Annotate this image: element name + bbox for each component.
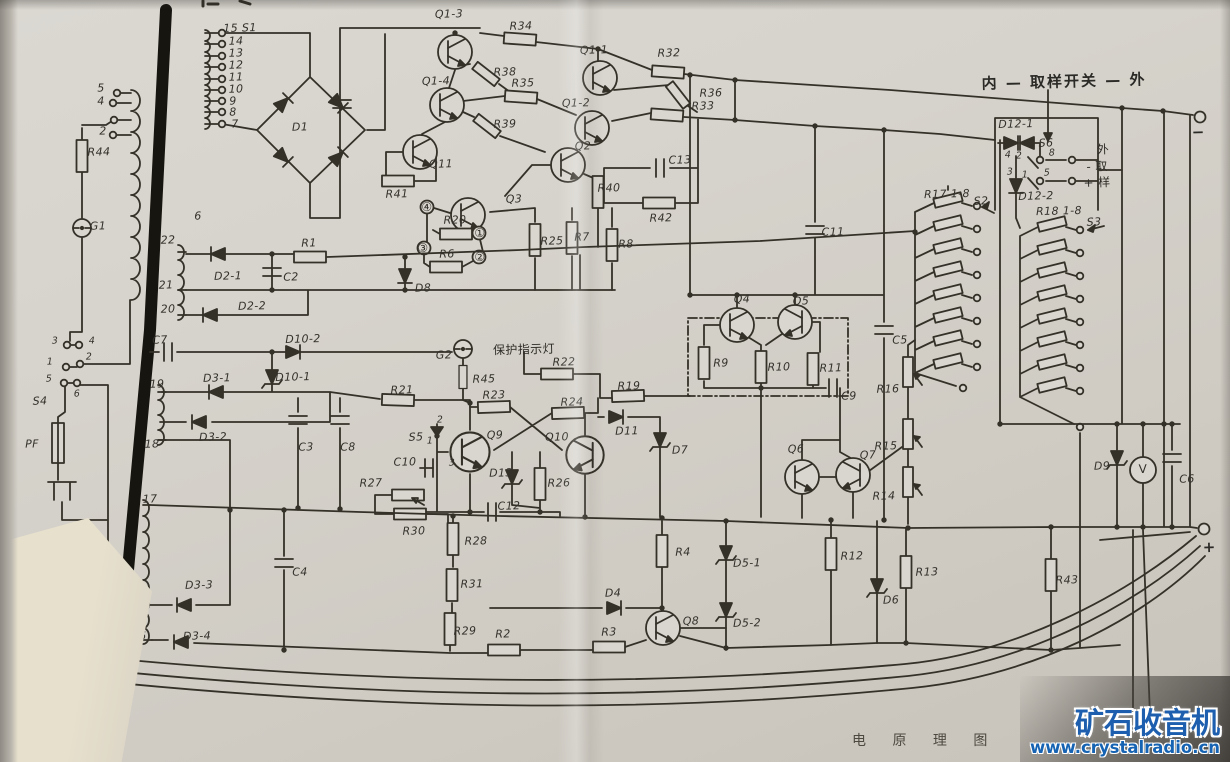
label-t7: 7	[231, 117, 239, 130]
label-r30: R30	[402, 524, 425, 538]
label-d10-2: D10-2	[285, 332, 321, 346]
label-term1: ①	[474, 226, 486, 240]
label-r45: R45	[472, 372, 495, 386]
label-r17: R17 1-8	[924, 187, 970, 201]
label-d7: D7	[672, 443, 689, 456]
label-s4: S4	[32, 394, 47, 407]
label-s3: S3	[1086, 215, 1101, 228]
label-s6c1: 1	[1022, 169, 1029, 180]
label-r12: R12	[840, 549, 863, 563]
label-t21: 21	[158, 278, 173, 291]
label-r35: R35	[511, 76, 534, 90]
label-c5: C5	[892, 333, 908, 346]
label-t15: 15 S1	[223, 21, 257, 35]
watermark: 矿石收音机 www.crystalradio.cn	[1030, 708, 1220, 756]
label-d3-3: D3-3	[185, 578, 213, 592]
label-t17: 17	[142, 492, 157, 505]
label-s2: S2	[973, 194, 988, 207]
label-t20: 20	[160, 302, 175, 315]
label-s6c5: 5	[1044, 167, 1051, 178]
label-t22: 22	[160, 233, 175, 246]
transformer-core	[121, 10, 166, 646]
label-r21: R21	[390, 383, 413, 397]
label-d12-1: D12-1	[998, 117, 1034, 131]
label-r6: R6	[439, 247, 455, 260]
label-s4c6: 6	[74, 388, 81, 399]
label-s4c5: 5	[46, 373, 53, 384]
label-t18: 18	[144, 437, 159, 450]
label-s4c3: 3	[52, 335, 59, 346]
label-r44: R44	[87, 145, 110, 159]
label-q4: Q4	[734, 292, 751, 305]
label-switchnote: 内 — 取样开关 — 外	[981, 68, 1146, 93]
photographed-schematic-page: 15 S114131211109876542R44G1342156S4PFD12…	[0, 0, 1230, 762]
label-r29: R29	[453, 624, 476, 638]
label-d4: D4	[605, 586, 622, 599]
label-yang: + 样	[1083, 173, 1111, 191]
label-q8: Q8	[683, 614, 700, 627]
label-r4: R4	[675, 545, 691, 558]
label-d2-1: D2-1	[214, 269, 242, 283]
label-r16: R16	[876, 382, 899, 396]
label-s5c3: 3	[449, 457, 456, 468]
label-d2-2: D2-2	[238, 299, 266, 313]
label-s4c1: 1	[47, 356, 54, 367]
label-q3: Q3	[506, 192, 523, 205]
tap-terminals	[61, 30, 226, 387]
label-r36: R36	[699, 86, 722, 100]
label-d13: D13	[489, 466, 513, 480]
label-r2: R2	[495, 627, 511, 640]
label-d5-1: D5-1	[733, 556, 761, 570]
label-r14: R14	[872, 489, 895, 503]
label-q5: Q5	[793, 294, 810, 307]
watermark-brand: 矿石收音机	[1030, 708, 1220, 738]
book-gutter-shadow	[0, 0, 18, 762]
label-v-meter: V	[1139, 462, 1148, 476]
label-s6c8: 8	[1049, 147, 1056, 158]
label-d3-4: D3-4	[183, 629, 211, 643]
label-c4: C4	[292, 565, 308, 578]
range-ladder-r17	[915, 186, 994, 391]
label-c2: C2	[283, 270, 299, 283]
label-term3: ③	[417, 241, 429, 255]
label-r13: R13	[915, 565, 938, 579]
label-term4: ④	[421, 200, 433, 214]
label-plus: +	[1202, 538, 1217, 556]
label-r31: R31	[460, 577, 483, 591]
label-qu: - 取	[1086, 157, 1108, 175]
label-r34: R34	[509, 19, 532, 33]
label-s6c3: 3	[1007, 166, 1014, 177]
label-q9: Q9	[487, 428, 504, 441]
label-c12: C12	[497, 499, 520, 513]
label-r43: R43	[1055, 573, 1078, 587]
label-c7: C7	[152, 333, 168, 346]
label-d12-2: D12-2	[1018, 189, 1054, 203]
label-pf: PF	[25, 437, 39, 450]
label-r9: R9	[713, 356, 729, 369]
label-r19: R19	[617, 379, 640, 393]
label-c6: C6	[1179, 472, 1195, 485]
label-r27: R27	[359, 476, 382, 490]
label-r28: R28	[464, 534, 487, 548]
label-c9: C9	[841, 389, 857, 402]
right-edge-shadow	[1220, 0, 1230, 762]
label-tp4: 4	[97, 94, 105, 107]
label-q6: Q6	[788, 442, 805, 455]
label-r18: R18 1-8	[1036, 204, 1082, 218]
label-lampnote: 保护指示灯	[493, 340, 555, 359]
label-c3: C3	[298, 440, 314, 453]
label-d8: D8	[415, 281, 432, 294]
label-d6: D6	[883, 593, 900, 606]
label-d11: D11	[615, 424, 639, 438]
label-c10: C10	[393, 455, 416, 469]
label-waiq: 外	[1097, 140, 1110, 157]
label-q11: Q11	[429, 157, 453, 171]
label-r32: R32	[657, 46, 680, 60]
label-r8: R8	[618, 237, 634, 250]
label-d10-1: D10-1	[275, 370, 311, 384]
label-q1-4: Q1-4	[422, 74, 451, 88]
label-c11: C11	[821, 225, 844, 239]
circuit-drawing	[0, 0, 1230, 762]
label-r1: R1	[301, 236, 317, 249]
label-c13: C13	[668, 153, 691, 167]
label-tp5: 5	[97, 81, 105, 94]
label-r15: R15	[874, 439, 897, 453]
label-s4c2: 2	[86, 351, 93, 362]
label-r33: R33	[691, 99, 714, 113]
label-s5: S5	[408, 430, 423, 443]
label-d3-2: D3-2	[199, 430, 227, 444]
label-r20: R20	[443, 213, 466, 227]
label-s6c2: 2	[1016, 150, 1023, 161]
label-d1: D1	[292, 120, 309, 133]
label-r42: R42	[649, 211, 672, 225]
protection-and-comparator	[375, 340, 726, 651]
label-d5-2: D5-2	[733, 616, 761, 630]
label-minus: −	[1191, 123, 1206, 141]
figure-caption: 电 原 理 图	[852, 730, 998, 750]
label-t19: 19	[149, 377, 164, 390]
label-g1: G1	[90, 219, 107, 232]
page-center-crease	[558, 0, 604, 762]
label-term2: ②	[474, 250, 486, 264]
label-r10: R10	[767, 360, 790, 374]
label-d3-1: D3-1	[203, 371, 231, 385]
label-r41: R41	[385, 187, 408, 201]
label-s5c2: 2	[437, 414, 444, 425]
label-t6: 6	[194, 209, 202, 222]
watermark-url: www.crystalradio.cn	[1030, 739, 1220, 756]
label-d9: D9	[1094, 459, 1111, 472]
low-voltage-winding	[148, 505, 908, 656]
label-c8: C8	[340, 440, 356, 453]
label-tp2: 2	[99, 124, 107, 137]
label-r39: R39	[493, 117, 516, 131]
label-s6c4: 4	[1005, 149, 1012, 160]
label-r11: R11	[819, 361, 842, 375]
label-r23: R23	[482, 388, 505, 402]
label-s4c4: 4	[89, 335, 96, 346]
label-s5c1: 1	[427, 435, 434, 446]
label-g2: G2	[436, 348, 453, 361]
top-edge-shadow	[0, 0, 1230, 10]
